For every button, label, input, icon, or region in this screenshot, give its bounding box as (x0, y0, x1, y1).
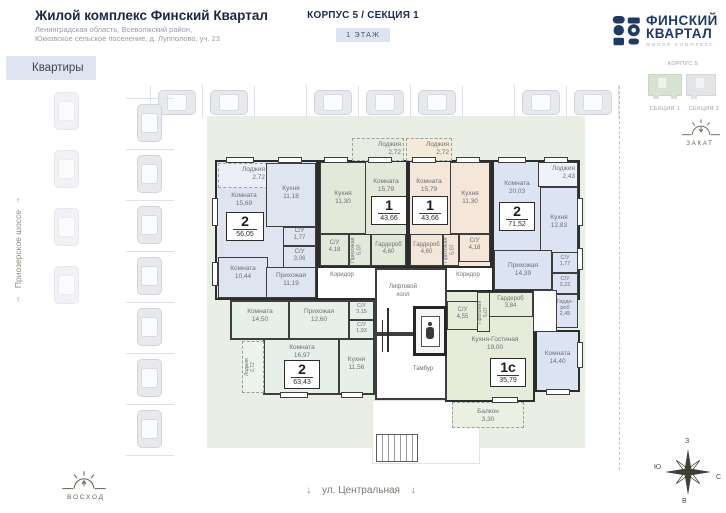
room-label: С/У1,77 (553, 255, 577, 267)
room-label: Прихожая5,07 (350, 236, 370, 264)
room-label: Прихожая12,60 (291, 308, 347, 323)
parking-divider (462, 85, 463, 118)
window (368, 157, 392, 163)
room-label: Прихожая14,39 (496, 262, 550, 277)
room-label: Кухня11,30 (322, 190, 364, 205)
site-boundary-dashed-line (619, 86, 620, 470)
down-arrow-icon: ↓ (306, 485, 311, 496)
window (546, 389, 570, 395)
elevator-hall-label: Лифтовой холл (384, 284, 422, 299)
minimap-section-1[interactable] (648, 74, 682, 96)
room-label: Кухня11,56 (339, 356, 374, 371)
apartment-badge-2-56[interactable]: 256,05 (226, 212, 264, 241)
floor-badge: 1 ЭТАЖ (336, 28, 390, 42)
car-icon (137, 155, 162, 193)
minimap-corpus-label: КОРПУС 5 (648, 61, 718, 67)
elevator-car-icon (421, 316, 440, 347)
window (212, 262, 218, 286)
parking-divider (126, 98, 174, 99)
car-icon (137, 257, 162, 295)
room-label: Лоджия2,72 (355, 141, 401, 156)
apartment-badge-1-43-left[interactable]: 143,66 (371, 196, 407, 225)
logo-tagline: ЖИЛОЙ КОМПЛЕКС (646, 42, 718, 47)
room-label: Комната10,44 (221, 265, 265, 280)
room-label: Балкон3,30 (456, 408, 520, 423)
room-label: С/У4,18 (321, 240, 348, 253)
minimap-section-1-tab (671, 95, 677, 99)
room-label: Лоджия2,72 (408, 141, 449, 156)
minimap-section-1-label: СЕКЦИЯ 1 (642, 106, 688, 112)
vestibule-label: Тамбур (400, 366, 446, 374)
room-label: С/У3,22 (553, 276, 577, 288)
compass-right: С (716, 474, 721, 481)
apartment-badge-1-43-right[interactable]: 143,66 (412, 196, 448, 225)
corpus-section-title: КОРПУС 5 / СЕКЦИЯ 1 (283, 10, 443, 21)
apartment-badge-2-71[interactable]: 271,52 (499, 202, 535, 231)
logo-text: ФИНСКИЙ КВАРТАЛ ЖИЛОЙ КОМПЛЕКС (646, 15, 718, 47)
sunset-label: ЗАКАТ (672, 141, 726, 147)
room-label: С/У3,06 (285, 249, 314, 262)
window (341, 392, 363, 398)
address-line-1: Ленинградская область, Всеволжский район… (35, 25, 192, 34)
minimap-section-1-detail (658, 78, 666, 88)
apartment-badge-1c-35[interactable]: 1с35,79 (490, 358, 526, 387)
car-icon (54, 266, 79, 304)
car-icon (137, 104, 162, 142)
down-arrow-icon: ↓ (411, 485, 416, 496)
window (492, 397, 518, 403)
window (226, 157, 254, 163)
window (544, 157, 568, 163)
room-label: С/У1,77 (285, 228, 314, 241)
logo-icon (612, 15, 642, 47)
room-label: С/У3,15 (349, 303, 374, 315)
compass-top: З (685, 438, 689, 445)
room-label: Прихожая5,07 (477, 294, 489, 330)
parking-divider (410, 85, 411, 118)
minimap-section-2-detail (696, 78, 704, 88)
window (456, 157, 480, 163)
room-label: Кухня11,18 (268, 185, 314, 200)
room-label: Гардероб4,60 (372, 242, 405, 255)
parking-divider (566, 85, 567, 118)
room-label: Прихожая11,19 (269, 272, 313, 287)
address-line-2: Юкковское сельское поселение, д. Лупполо… (35, 34, 220, 43)
room-label: Кухня12,83 (541, 214, 577, 229)
up-arrow-icon: ↑ (16, 194, 20, 204)
car-icon (137, 308, 162, 346)
logo-line2: КВАРТАЛ (646, 28, 718, 41)
parking-divider (306, 85, 307, 118)
window (412, 157, 436, 163)
parking-divider (254, 85, 255, 118)
up-arrow-icon: ↑ (16, 294, 20, 304)
minimap-section-1-tab (653, 95, 659, 99)
logo (612, 15, 642, 52)
parking-divider (358, 85, 359, 118)
elevator-shaft (413, 306, 447, 356)
car-icon (574, 90, 612, 115)
parking-divider (202, 85, 203, 118)
tab-apartments[interactable]: Квартиры (6, 56, 96, 80)
parking-divider (126, 302, 174, 303)
parking-divider (126, 200, 174, 201)
room-label: Кухня-Гостиная19,00 (466, 336, 524, 351)
car-icon (522, 90, 560, 115)
window (577, 248, 583, 270)
elevator-person-head (428, 322, 432, 326)
parking-divider (126, 149, 174, 150)
window (498, 157, 526, 163)
floorplan-page: Жилой комплекс Финский Квартал Ленинград… (0, 0, 726, 513)
stair-wall (387, 308, 389, 352)
room-label: Комната14,50 (233, 308, 287, 323)
street-left-label: Приозерское шоссе (13, 204, 23, 294)
car-icon (314, 90, 352, 115)
corridor-label: Коридор (322, 272, 362, 280)
compass: З Ю С В (648, 438, 726, 510)
sunrise-label: ВОСХОД (48, 494, 124, 501)
window (577, 198, 583, 226)
room-label: С/У4,55 (448, 307, 477, 320)
corridor-label: Коридор (448, 272, 488, 280)
street-bottom-label: ул. Центральная (314, 485, 408, 496)
room-label: Комната15,69 (222, 192, 266, 207)
car-icon (210, 90, 248, 115)
compass-bottom: В (682, 498, 687, 505)
parking-divider (514, 85, 515, 118)
room-label: Лоджия2,72 (221, 166, 265, 181)
car-icon (137, 359, 162, 397)
minimap-section-2-tab (691, 95, 697, 99)
car-icon (137, 206, 162, 244)
window (278, 157, 302, 163)
car-icon (158, 90, 196, 115)
street-left: ↑ Приозерское шоссе ↑ (13, 184, 25, 314)
room-label: Комната15,79 (409, 178, 449, 193)
parking-divider (126, 404, 174, 405)
parking-divider (126, 455, 174, 456)
window (324, 157, 348, 163)
room-label: Комната16,97 (276, 344, 328, 359)
compass-rose-icon (664, 448, 712, 496)
parking-divider (618, 85, 619, 118)
room-label: Гардероб3,84 (489, 296, 532, 309)
car-icon (137, 410, 162, 448)
minimap-section-2[interactable] (686, 74, 716, 96)
minimap-section-2-label: СЕКЦИЯ 2 (684, 106, 724, 112)
car-icon (54, 92, 79, 130)
window (280, 392, 308, 398)
car-icon (54, 208, 79, 246)
stair-wall (382, 320, 383, 352)
compass-left: Ю (654, 464, 661, 471)
window (212, 198, 218, 226)
room-label: Прихожая5,07 (443, 236, 458, 264)
corpus-section-header: КОРПУС 5 / СЕКЦИЯ 1 1 ЭТАЖ (283, 10, 443, 42)
room-label: Комната15,79 (366, 178, 406, 193)
room-label: С/У4,18 (460, 238, 489, 251)
car-icon (366, 90, 404, 115)
street-bottom: ↓ ул. Центральная ↓ (296, 485, 426, 496)
room-label: Лоджия2,43 (540, 165, 575, 180)
room-label: Комната20,03 (494, 180, 540, 195)
page-title: Жилой комплекс Финский Квартал (35, 8, 268, 23)
entrance-stairs (376, 434, 418, 462)
parking-divider (126, 353, 174, 354)
room-label: С/У1,93 (349, 322, 374, 334)
car-icon (418, 90, 456, 115)
car-icon (54, 150, 79, 188)
parking-divider (126, 251, 174, 252)
room-label: Гарде-роб2,45 (553, 299, 577, 317)
room-label: Гардероб4,60 (411, 242, 442, 255)
elevator-person-body (426, 327, 434, 339)
room-label: Кухня11,30 (452, 190, 488, 205)
room-label: Лоджия2,72 (244, 344, 262, 390)
apartment-badge-2-63[interactable]: 263,43 (284, 360, 320, 389)
room-label: Комната14,40 (537, 350, 578, 365)
